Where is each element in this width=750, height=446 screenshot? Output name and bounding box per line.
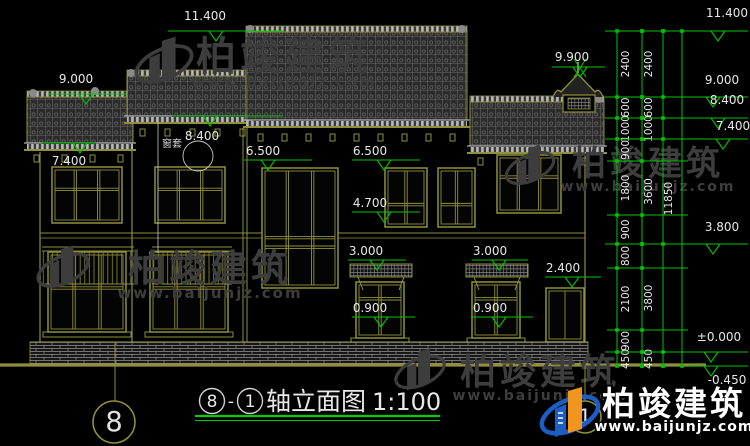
watermark-text: 柏竣建筑 bbox=[572, 144, 724, 184]
drawing-title: 8 - 1 轴立面图 1:100 bbox=[195, 387, 441, 421]
brand-name: 柏竣建筑 bbox=[602, 384, 746, 423]
elevation-value: 8.400 bbox=[185, 129, 219, 143]
dim-value: 3800 bbox=[643, 285, 655, 312]
title-text: 轴立面图 bbox=[266, 387, 366, 416]
eave-corbel bbox=[306, 134, 311, 141]
dim-value: 900 bbox=[620, 331, 632, 351]
dim-tick bbox=[615, 364, 619, 368]
elevation-value: 0.900 bbox=[353, 301, 387, 315]
elevation-marker: 2.400 bbox=[545, 261, 601, 287]
door bbox=[546, 288, 584, 342]
elevation-value: 3.800 bbox=[705, 220, 739, 234]
dim-tick bbox=[640, 328, 644, 332]
dim-value: 600 bbox=[620, 97, 632, 117]
watermark-url: www.baijunjz.com bbox=[117, 284, 302, 302]
dim-value: 2100 bbox=[620, 286, 632, 313]
eave-corbel bbox=[478, 158, 483, 165]
elevation-value: 2.400 bbox=[546, 261, 580, 275]
elevation-value: 11.400 bbox=[706, 6, 748, 20]
title-scale: 1:100 bbox=[372, 388, 441, 416]
dim-value: 3600 bbox=[643, 178, 655, 205]
dim-value: 1000 bbox=[643, 115, 655, 142]
title-axis-start: 8 bbox=[207, 392, 218, 412]
dim-tick bbox=[680, 364, 684, 368]
annotation-text: 窗套 bbox=[162, 137, 182, 150]
elevation-value: 8.400 bbox=[710, 93, 744, 107]
ridge-ornament bbox=[246, 25, 254, 33]
elevation-value: 11.400 bbox=[184, 9, 226, 23]
dim-value: 2400 bbox=[643, 51, 655, 78]
title-axis-end: 1 bbox=[245, 392, 256, 412]
brand-logo: 柏竣建筑 www.baijunjz.com bbox=[536, 384, 750, 441]
title-separator: - bbox=[228, 392, 234, 412]
elevation-value: 9.900 bbox=[555, 50, 589, 64]
eave-corbel bbox=[34, 155, 39, 162]
watermark-url: www.baijunjz.com bbox=[191, 73, 376, 91]
dim-value: 11850 bbox=[663, 182, 675, 215]
window bbox=[155, 167, 225, 223]
brand-url: www.baijunjz.com bbox=[595, 419, 750, 435]
dim-tick bbox=[615, 266, 619, 270]
elevation-value: 4.700 bbox=[353, 196, 387, 210]
dim-value: 600 bbox=[643, 97, 655, 117]
elevation-value: 3.000 bbox=[349, 244, 383, 258]
elevation-value: 6.500 bbox=[353, 144, 387, 158]
window bbox=[438, 168, 475, 227]
elevation-value: 3.000 bbox=[473, 244, 507, 258]
window bbox=[52, 167, 122, 223]
dim-tick bbox=[615, 213, 619, 217]
elevation-value: 0.900 bbox=[473, 301, 507, 315]
watermark-text: 柏竣建筑 bbox=[460, 352, 620, 393]
dim-value: 800 bbox=[620, 246, 632, 266]
eave-corbel bbox=[450, 134, 455, 141]
dim-tick bbox=[661, 364, 665, 368]
eave-corbel bbox=[402, 134, 407, 141]
dim-tick bbox=[615, 328, 619, 332]
brand-logo-building-right bbox=[568, 387, 582, 433]
dim-tick bbox=[640, 213, 644, 217]
elevation-value: 7.400 bbox=[716, 119, 750, 133]
elevation-value: 7.400 bbox=[52, 154, 86, 168]
eave-corbel bbox=[258, 134, 263, 141]
cad-viewport: 柏竣建筑www.baijunjz.com柏竣建筑www.baijunjz.com… bbox=[0, 0, 750, 446]
elevation-marker: 6.500 bbox=[244, 144, 312, 170]
elevation-marker: 6.500 bbox=[352, 144, 420, 170]
dim-value: 2400 bbox=[620, 51, 632, 78]
brand-logo-building-left bbox=[555, 404, 566, 437]
elevation-value: ±0.000 bbox=[697, 330, 741, 344]
eave-corbel bbox=[282, 134, 287, 141]
elevation-marker: 11.400 bbox=[605, 6, 748, 41]
dim-value: 1800 bbox=[620, 175, 632, 202]
roof bbox=[24, 91, 136, 150]
ridge-ornament bbox=[29, 89, 37, 97]
eave-corbel bbox=[330, 134, 335, 141]
dim-tick bbox=[640, 266, 644, 270]
dim-value: 900 bbox=[620, 140, 632, 160]
dim-value: 900 bbox=[620, 219, 632, 239]
axis-number: 8 bbox=[105, 407, 122, 438]
elevation-value: 6.500 bbox=[246, 144, 280, 158]
dim-tick bbox=[640, 159, 644, 163]
ridge-ornament bbox=[127, 69, 135, 77]
elevation-value: 9.000 bbox=[705, 73, 739, 87]
eave-corbel bbox=[165, 129, 170, 136]
eave-corbel bbox=[354, 134, 359, 141]
elevation-value: 9.000 bbox=[59, 72, 93, 86]
elevation-drawing: 柏竣建筑www.baijunjz.com柏竣建筑www.baijunjz.com… bbox=[0, 0, 750, 446]
dim-tick bbox=[615, 159, 619, 163]
eave-corbel bbox=[90, 155, 95, 162]
window bbox=[385, 168, 427, 227]
dim-value: 1000 bbox=[620, 115, 632, 142]
eave-corbel bbox=[118, 155, 123, 162]
ridge-ornament bbox=[458, 25, 466, 33]
eave-corbel bbox=[378, 134, 383, 141]
eave-corbel bbox=[426, 134, 431, 141]
eave-corbel bbox=[140, 129, 145, 136]
